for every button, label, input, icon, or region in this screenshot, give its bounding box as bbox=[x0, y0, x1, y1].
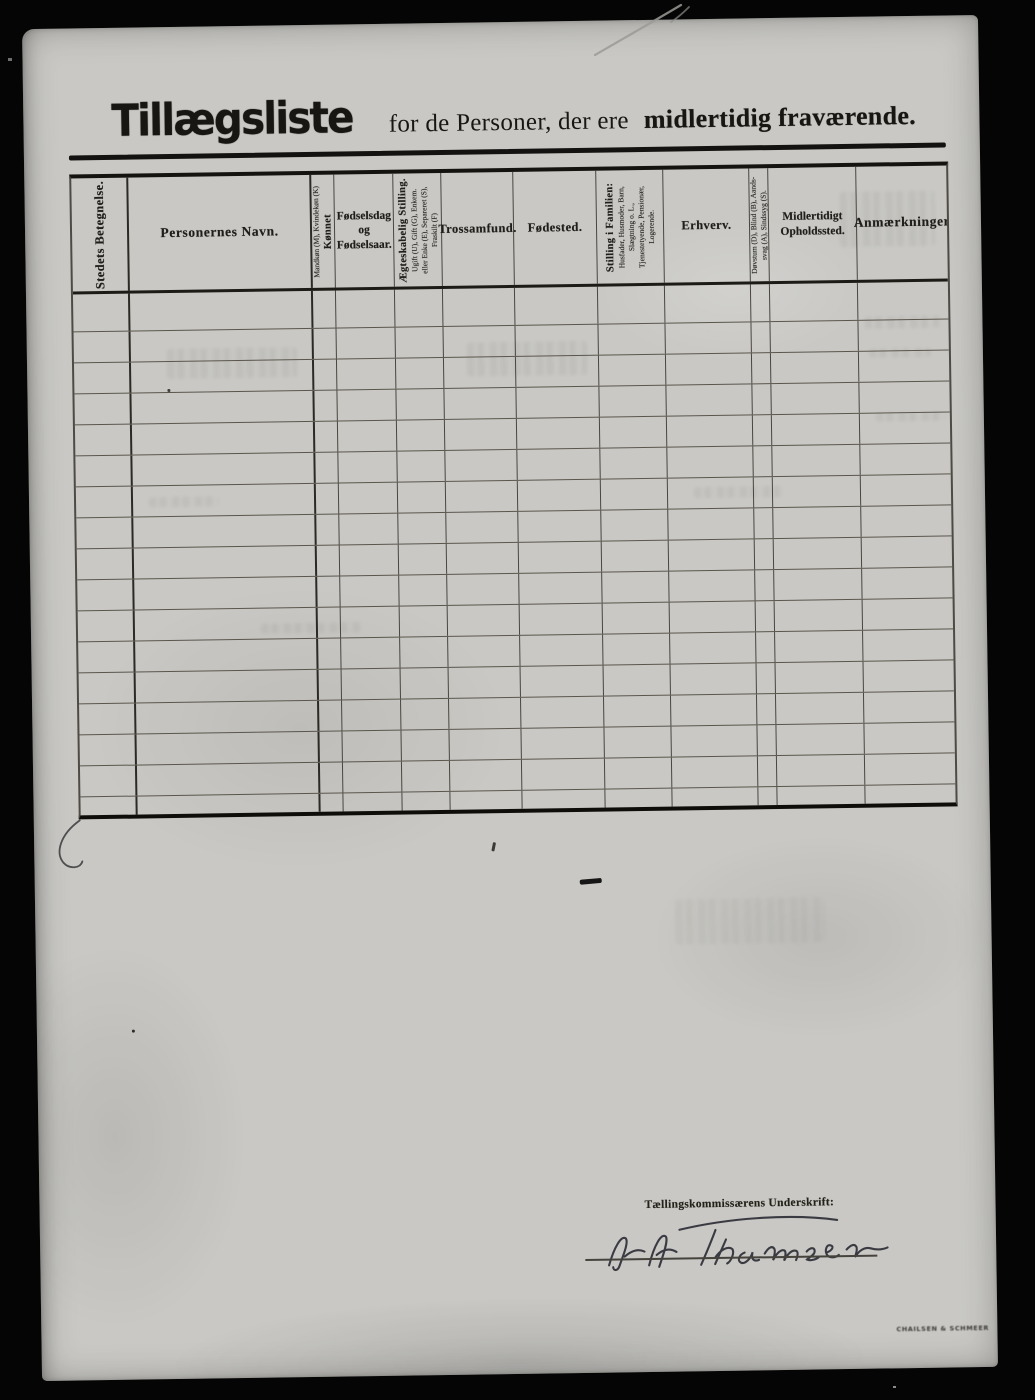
cell-midlertidigt-opholdssted bbox=[777, 755, 865, 786]
cell-anmaerkninger bbox=[860, 412, 950, 443]
cell-stilling-i-familien bbox=[598, 286, 666, 324]
cell-aegteskabelig-stilling bbox=[401, 730, 449, 761]
cell-stedets-betegnelse bbox=[77, 580, 134, 611]
cell-doevstum bbox=[755, 570, 774, 600]
cell-stilling-i-familien bbox=[604, 665, 671, 696]
cell-doevstum bbox=[753, 446, 772, 476]
cell-koennet bbox=[320, 762, 343, 792]
cell-trossamfund bbox=[450, 760, 522, 791]
cell-doevstum bbox=[758, 787, 777, 805]
cell-trossamfund bbox=[449, 667, 521, 698]
cell-personernes-navn bbox=[131, 360, 314, 393]
header-label: Fødested. bbox=[528, 220, 583, 236]
cell-stedets-betegnelse bbox=[77, 549, 134, 580]
cell-stilling-i-familien bbox=[603, 603, 670, 634]
cell-stedets-betegnelse bbox=[74, 363, 131, 394]
cell-koennet bbox=[314, 360, 337, 390]
cell-koennet bbox=[314, 329, 337, 359]
cell-anmaerkninger bbox=[858, 319, 948, 350]
cell-trossamfund bbox=[445, 419, 517, 450]
cell-koennet bbox=[316, 484, 339, 514]
pen-dot-mark bbox=[132, 1030, 135, 1033]
cell-anmaerkninger bbox=[859, 381, 949, 412]
cell-erhverv bbox=[669, 539, 755, 570]
cell-doevstum bbox=[753, 415, 772, 445]
cell-doevstum bbox=[751, 284, 771, 321]
cell-erhverv bbox=[667, 446, 753, 477]
cell-foedselsdag bbox=[336, 328, 395, 359]
cell-stilling-i-familien bbox=[600, 417, 667, 448]
cell-aegteskabelig-stilling bbox=[400, 637, 448, 668]
cell-anmaerkninger bbox=[862, 567, 952, 598]
cell-stedets-betegnelse bbox=[80, 797, 137, 816]
cell-foedested bbox=[521, 697, 604, 728]
header-stilling-i-familien: Stilling i Familien:Husfader, Husmoder, … bbox=[596, 170, 665, 284]
cell-midlertidigt-opholdssted bbox=[771, 383, 859, 414]
cell-anmaerkninger bbox=[858, 281, 949, 319]
cell-doevstum bbox=[757, 663, 776, 693]
header-label: Opholdssted. bbox=[780, 223, 844, 238]
cell-aegteskabelig-stilling bbox=[399, 575, 447, 606]
cell-trossamfund bbox=[446, 481, 518, 512]
cell-foedselsdag bbox=[343, 793, 402, 812]
cell-erhverv bbox=[671, 663, 757, 694]
cell-erhverv bbox=[666, 384, 752, 415]
cell-stedets-betegnelse bbox=[74, 332, 131, 363]
header-foedselsdag: FødselsdagogFødselsaar. bbox=[334, 174, 395, 288]
form-title: Tillægsliste for de Personer, der ere mi… bbox=[111, 84, 912, 147]
cell-midlertidigt-opholdssted bbox=[771, 352, 859, 383]
cell-aegteskabelig-stilling bbox=[400, 606, 448, 637]
cell-trossamfund bbox=[447, 574, 519, 605]
cell-personernes-navn bbox=[135, 639, 318, 672]
title-main: Tillægsliste bbox=[111, 92, 353, 147]
cell-stedets-betegnelse bbox=[78, 642, 135, 673]
cell-foedested bbox=[521, 728, 604, 759]
cell-foedested bbox=[516, 356, 599, 387]
cell-aegteskabelig-stilling bbox=[397, 451, 445, 482]
cell-aegteskabelig-stilling bbox=[397, 420, 445, 451]
cell-anmaerkninger bbox=[865, 753, 955, 784]
cell-erhverv bbox=[665, 322, 751, 353]
cell-foedested bbox=[515, 325, 598, 356]
cell-stedets-betegnelse bbox=[79, 673, 136, 704]
header-label: Anmærkninger bbox=[854, 213, 951, 231]
header-erhverv: Erhverv. bbox=[663, 168, 751, 282]
cell-koennet bbox=[314, 391, 337, 421]
cell-trossamfund bbox=[444, 357, 516, 388]
cell-midlertidigt-opholdssted bbox=[774, 538, 862, 569]
cell-midlertidigt-opholdssted bbox=[776, 693, 864, 724]
cell-stilling-i-familien bbox=[602, 541, 669, 572]
cell-trossamfund bbox=[450, 791, 522, 810]
cell-anmaerkninger bbox=[865, 784, 955, 803]
header-koennet: Mandkøn (M), Kvindekøn (K)Kønnet bbox=[311, 175, 336, 288]
census-form-page: Tillægsliste for de Personer, der ere mi… bbox=[22, 15, 998, 1381]
cell-anmaerkninger bbox=[859, 350, 949, 381]
cell-stilling-i-familien bbox=[602, 572, 669, 603]
cell-foedested bbox=[521, 666, 604, 697]
scratch-mark bbox=[585, 1, 700, 61]
printer-mark: Chailsen & Schmeer bbox=[896, 1324, 989, 1333]
cell-anmaerkninger bbox=[864, 691, 954, 722]
cell-midlertidigt-opholdssted bbox=[775, 600, 863, 631]
cell-stilling-i-familien bbox=[600, 448, 667, 479]
cell-koennet bbox=[316, 515, 339, 545]
cell-koennet bbox=[319, 669, 342, 699]
cell-foedselsdag bbox=[337, 359, 396, 390]
cell-anmaerkninger bbox=[863, 598, 953, 629]
cell-foedested bbox=[522, 759, 605, 790]
cell-stedets-betegnelse bbox=[78, 611, 135, 642]
cell-midlertidigt-opholdssted bbox=[772, 414, 860, 445]
cell-foedselsdag bbox=[336, 290, 396, 328]
cell-doevstum bbox=[757, 694, 776, 724]
cell-midlertidigt-opholdssted bbox=[773, 476, 861, 507]
cell-personernes-navn bbox=[136, 701, 319, 734]
cell-foedested bbox=[517, 418, 600, 449]
cell-aegteskabelig-stilling bbox=[398, 482, 446, 513]
header-label: Kønnet bbox=[322, 214, 334, 249]
cell-trossamfund bbox=[443, 326, 515, 357]
header-stedets-betegnelse: Stedets Betegnelse. bbox=[71, 178, 130, 292]
cell-stedets-betegnelse bbox=[73, 294, 131, 332]
cell-stilling-i-familien bbox=[599, 386, 666, 417]
cell-foedested bbox=[516, 387, 599, 418]
cell-foedselsdag bbox=[342, 731, 401, 762]
cell-erhverv bbox=[671, 725, 757, 756]
cell-midlertidigt-opholdssted bbox=[777, 786, 865, 805]
cell-foedselsdag bbox=[337, 390, 396, 421]
cell-doevstum bbox=[754, 508, 773, 538]
cell-anmaerkninger bbox=[861, 505, 951, 536]
cell-stilling-i-familien bbox=[598, 324, 665, 355]
cell-stilling-i-familien bbox=[605, 758, 672, 789]
cell-erhverv bbox=[670, 632, 756, 663]
cell-foedselsdag bbox=[342, 700, 401, 731]
cell-stedets-betegnelse bbox=[80, 766, 137, 797]
cell-personernes-navn bbox=[134, 577, 317, 610]
header-label: Fødselsaar. bbox=[337, 237, 392, 252]
cell-trossamfund bbox=[446, 512, 518, 543]
cell-midlertidigt-opholdssted bbox=[770, 321, 858, 352]
pen-dash-mark bbox=[580, 878, 602, 884]
scan-speck bbox=[893, 1386, 896, 1388]
cell-erhverv bbox=[672, 756, 758, 787]
cell-stilling-i-familien bbox=[604, 727, 671, 758]
cell-foedselsdag bbox=[339, 483, 398, 514]
header-label: og bbox=[358, 223, 370, 238]
cell-stilling-i-familien bbox=[604, 696, 671, 727]
cell-trossamfund bbox=[444, 388, 516, 419]
cell-foedested bbox=[518, 480, 601, 511]
cell-foedested bbox=[522, 790, 605, 809]
cell-koennet bbox=[318, 638, 341, 668]
cell-foedested bbox=[517, 449, 600, 480]
cell-stedets-betegnelse bbox=[74, 394, 131, 425]
header-label: Stedets Betegnelse. bbox=[92, 180, 107, 288]
cell-aegteskabelig-stilling bbox=[396, 389, 444, 420]
cell-stilling-i-familien bbox=[603, 634, 670, 665]
cell-foedselsdag bbox=[340, 545, 399, 576]
header-label: Logerende. bbox=[647, 209, 655, 243]
cell-midlertidigt-opholdssted bbox=[776, 724, 864, 755]
cell-doevstum bbox=[756, 632, 775, 662]
header-personernes-navn: Personernes Navn. bbox=[128, 175, 313, 291]
header-trossamfund: Trossamfund. bbox=[441, 172, 515, 286]
cell-stilling-i-familien bbox=[601, 510, 668, 541]
cell-erhverv bbox=[672, 787, 758, 806]
cell-erhverv bbox=[667, 415, 753, 446]
cell-foedselsdag bbox=[340, 576, 399, 607]
cell-stedets-betegnelse bbox=[76, 518, 133, 549]
header-label: Trossamfund. bbox=[438, 221, 517, 238]
cell-aegteskabelig-stilling bbox=[396, 358, 444, 389]
cell-aegteskabelig-stilling bbox=[401, 699, 449, 730]
cell-erhverv bbox=[668, 477, 754, 508]
cell-erhverv bbox=[669, 570, 755, 601]
cell-aegteskabelig-stilling bbox=[395, 289, 444, 327]
header-anmaerkninger: Anmærkninger bbox=[856, 165, 948, 279]
header-label: Husfader, Husmoder, Barn, bbox=[617, 186, 626, 268]
cell-koennet bbox=[317, 546, 340, 576]
cell-personernes-navn bbox=[133, 515, 316, 548]
cell-personernes-navn bbox=[137, 763, 320, 796]
cell-aegteskabelig-stilling bbox=[402, 761, 450, 792]
cell-foedselsdag bbox=[341, 638, 400, 669]
cell-personernes-navn bbox=[132, 453, 315, 486]
header-label: Døvstum (D), Blind (B), Aands- bbox=[749, 176, 758, 273]
cell-koennet bbox=[317, 577, 340, 607]
cell-koennet bbox=[318, 608, 341, 638]
cell-doevstum bbox=[755, 539, 774, 569]
cell-doevstum bbox=[752, 353, 771, 383]
pen-tick-mark bbox=[491, 842, 495, 851]
cell-personernes-navn bbox=[131, 391, 314, 424]
cell-anmaerkninger bbox=[860, 443, 950, 474]
cell-doevstum bbox=[754, 477, 773, 507]
pen-dot-mark bbox=[167, 389, 170, 392]
header-label: eller Enke (E), Separeret (S), bbox=[419, 186, 428, 273]
cell-foedested bbox=[519, 573, 602, 604]
cell-midlertidigt-opholdssted bbox=[773, 507, 861, 538]
cell-doevstum bbox=[756, 601, 775, 631]
cell-koennet bbox=[315, 453, 338, 483]
cell-stedets-betegnelse bbox=[76, 487, 133, 518]
cell-doevstum bbox=[752, 384, 771, 414]
header-doevstum: Døvstum (D), Blind (B), Aands-svag (A), … bbox=[749, 168, 770, 281]
header-label: svag (A), Sindssyg (S). bbox=[759, 190, 768, 260]
cell-aegteskabelig-stilling bbox=[398, 513, 446, 544]
cell-midlertidigt-opholdssted bbox=[776, 662, 864, 693]
cell-midlertidigt-opholdssted bbox=[774, 569, 862, 600]
header-label: Tjenestetyende, Pensionær, bbox=[637, 185, 646, 267]
cell-personernes-navn bbox=[133, 484, 316, 517]
cell-aegteskabelig-stilling bbox=[402, 792, 450, 811]
cell-midlertidigt-opholdssted bbox=[770, 283, 859, 321]
header-label: Personernes Navn. bbox=[160, 223, 278, 242]
cell-koennet bbox=[313, 291, 337, 328]
cell-personernes-navn bbox=[130, 291, 314, 331]
cell-foedselsdag bbox=[343, 762, 402, 793]
header-label: Fødselsdag bbox=[337, 209, 392, 224]
cell-personernes-navn bbox=[137, 732, 320, 765]
cell-trossamfund bbox=[448, 605, 520, 636]
cell-doevstum bbox=[758, 756, 777, 786]
cell-erhverv bbox=[671, 694, 757, 725]
header-aegteskabelig-stilling: Ægteskabelig Stilling.Ugift (U), Gift (G… bbox=[393, 173, 443, 287]
cell-erhverv bbox=[670, 601, 756, 632]
cell-foedested bbox=[519, 542, 602, 573]
cell-midlertidigt-opholdssted bbox=[772, 445, 860, 476]
cell-stilling-i-familien bbox=[601, 479, 668, 510]
scan-speck bbox=[8, 58, 12, 61]
signature-handwriting bbox=[597, 1203, 892, 1279]
cell-foedselsdag bbox=[339, 514, 398, 545]
cell-personernes-navn bbox=[137, 794, 320, 815]
cell-personernes-navn bbox=[135, 608, 318, 641]
cell-trossamfund bbox=[449, 698, 521, 729]
cell-koennet bbox=[319, 700, 342, 730]
table-header-row: Stedets Betegnelse.Personernes Navn.Mand… bbox=[71, 165, 948, 294]
cell-doevstum bbox=[757, 725, 776, 755]
cell-stedets-betegnelse bbox=[80, 735, 137, 766]
cell-personernes-navn bbox=[134, 546, 317, 579]
cell-stilling-i-familien bbox=[605, 789, 672, 808]
cell-personernes-navn bbox=[136, 670, 319, 703]
cell-foedselsdag bbox=[338, 452, 397, 483]
cell-foedested bbox=[518, 511, 601, 542]
cell-stilling-i-familien bbox=[599, 355, 666, 386]
header-label: Midlertidigt bbox=[782, 209, 842, 224]
title-middle: for de Personer, der ere bbox=[389, 107, 630, 139]
cell-foedselsdag bbox=[338, 421, 397, 452]
cell-trossamfund bbox=[448, 636, 520, 667]
pen-flourish-mark bbox=[50, 816, 93, 881]
title-emphasis: midlertidig fraværende. bbox=[644, 101, 917, 135]
header-label: Stilling i Familien: bbox=[604, 182, 616, 272]
cell-personernes-navn bbox=[131, 329, 314, 362]
header-label: Fraskilt (F) bbox=[430, 213, 438, 247]
cell-anmaerkninger bbox=[861, 474, 951, 505]
cell-foedselsdag bbox=[342, 669, 401, 700]
cell-midlertidigt-opholdssted bbox=[775, 631, 863, 662]
cell-trossamfund bbox=[443, 288, 516, 326]
cell-foedested bbox=[520, 604, 603, 635]
header-label: Erhverv. bbox=[681, 217, 731, 233]
header-label: Slægtning o. L., bbox=[627, 203, 636, 251]
cell-anmaerkninger bbox=[863, 629, 953, 660]
cell-trossamfund bbox=[447, 543, 519, 574]
cell-doevstum bbox=[751, 322, 770, 352]
cell-foedselsdag bbox=[341, 607, 400, 638]
bleedthrough-smudge bbox=[675, 897, 826, 944]
cell-stedets-betegnelse bbox=[79, 704, 136, 735]
cell-erhverv bbox=[666, 353, 752, 384]
census-table: Stedets Betegnelse.Personernes Navn.Mand… bbox=[69, 161, 957, 819]
cell-koennet bbox=[315, 422, 338, 452]
cell-erhverv bbox=[668, 508, 754, 539]
cell-personernes-navn bbox=[132, 422, 315, 455]
cell-anmaerkninger bbox=[864, 660, 954, 691]
cell-stedets-betegnelse bbox=[75, 425, 132, 456]
cell-trossamfund bbox=[445, 450, 517, 481]
header-label: Mandkøn (M), Kvindekøn (K) bbox=[312, 185, 321, 277]
header-foedested: Fødested. bbox=[513, 171, 598, 285]
cell-foedested bbox=[515, 287, 599, 325]
cell-stedets-betegnelse bbox=[75, 456, 132, 487]
cell-aegteskabelig-stilling bbox=[399, 544, 447, 575]
cell-koennet bbox=[319, 731, 342, 761]
cell-foedested bbox=[520, 635, 603, 666]
header-midlertidigt-opholdssted: MidlertidigtOpholdssted. bbox=[768, 167, 858, 281]
cell-aegteskabelig-stilling bbox=[395, 327, 443, 358]
header-label: Ægteskabelig Stilling. bbox=[396, 178, 409, 283]
cell-aegteskabelig-stilling bbox=[401, 668, 449, 699]
cell-anmaerkninger bbox=[864, 722, 954, 753]
header-label: Ugift (U), Gift (G), Enkem. bbox=[410, 188, 419, 271]
cell-erhverv bbox=[665, 284, 752, 322]
cell-trossamfund bbox=[449, 729, 521, 760]
cell-koennet bbox=[320, 793, 343, 811]
cell-anmaerkninger bbox=[862, 536, 952, 567]
